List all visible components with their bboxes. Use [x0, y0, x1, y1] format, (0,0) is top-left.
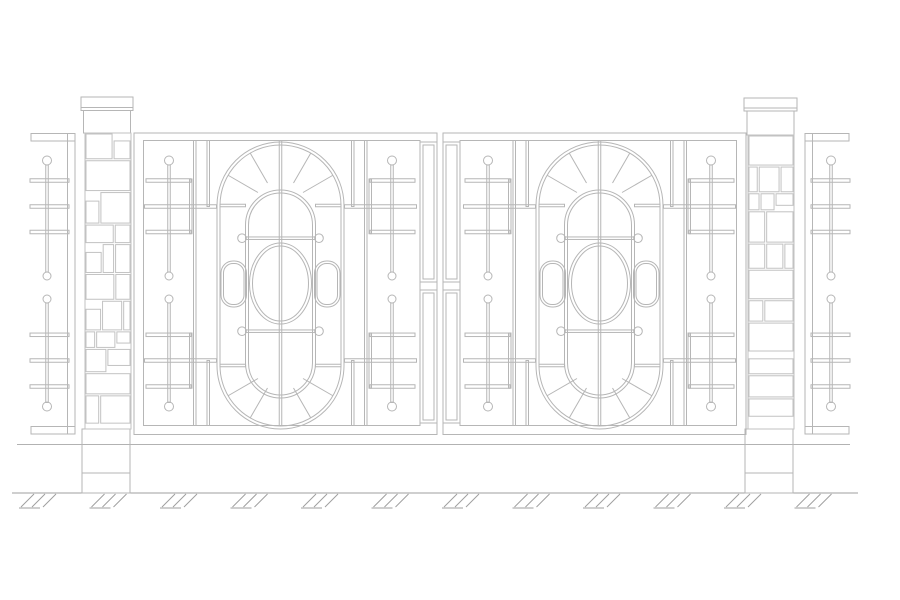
leaf-frame [134, 133, 437, 435]
gate-left-leaf [134, 133, 437, 435]
fence-lattice [811, 156, 850, 411]
latch-band [418, 282, 462, 290]
gate-elevation-drawing [0, 0, 900, 600]
pillar-stone-shaft [85, 133, 131, 429]
leaf-frame [443, 133, 746, 435]
lattice-strip [464, 141, 536, 426]
lattice-strip [664, 141, 736, 426]
bolt-rows [557, 234, 643, 336]
outer-stadium [217, 142, 344, 429]
gate-right-leaf [443, 133, 746, 435]
outer-stadium [536, 142, 663, 429]
center-ellipse [250, 243, 312, 324]
inner-stadium [565, 190, 635, 398]
bolt-rows [238, 234, 324, 336]
side-pills [540, 261, 659, 307]
left-pillar [81, 97, 133, 493]
ground-hatch-marks [19, 494, 832, 508]
lattice-strip [345, 141, 417, 426]
center-line [598, 141, 601, 426]
elevation-svg [0, 0, 900, 600]
lattice-strip [145, 141, 217, 426]
center-line [279, 141, 282, 426]
pillar-stone-shaft [748, 135, 794, 429]
pillar-cap [744, 98, 797, 135]
inner-stadium [246, 190, 316, 398]
center-ellipse [569, 243, 631, 324]
left-fence [30, 134, 75, 435]
right-pillar [744, 98, 797, 493]
pillar-cap [81, 97, 133, 133]
right-fence [805, 134, 850, 435]
side-pills [221, 261, 340, 307]
gate [134, 133, 746, 435]
ground [12, 445, 858, 509]
fence-lattice [30, 156, 69, 411]
